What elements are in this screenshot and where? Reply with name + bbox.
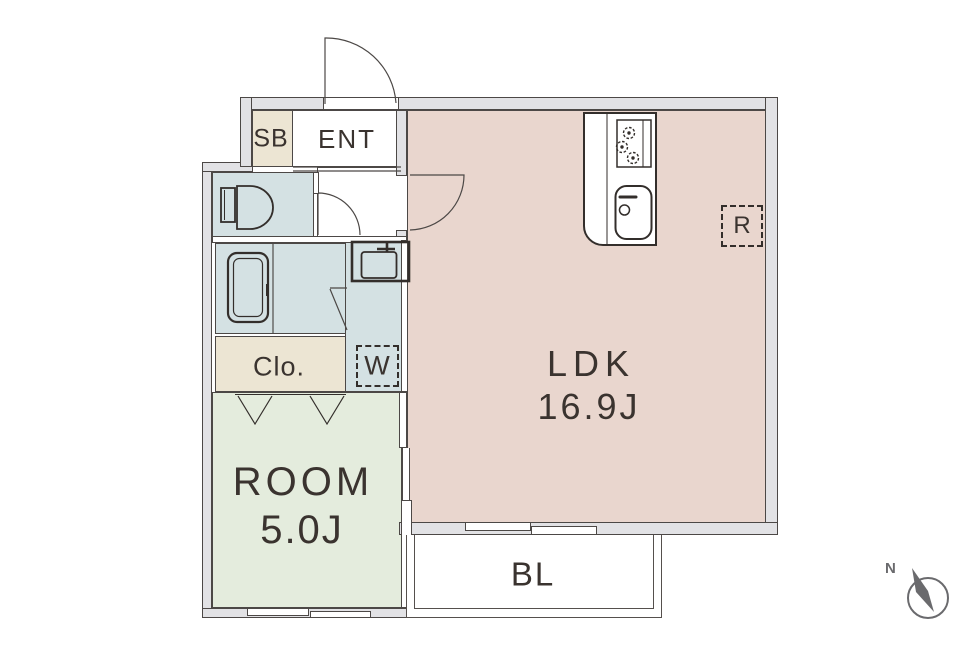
wall-right bbox=[765, 97, 778, 535]
bedroom-window-right-pane bbox=[310, 611, 371, 618]
compass-needle-icon bbox=[912, 568, 934, 612]
bathroom-room bbox=[215, 243, 346, 334]
bedroom-label: ROOM bbox=[233, 462, 373, 502]
floor-plan: N SB ENT LDK 16.9J ROOM 5.0J Clo. W R BL bbox=[0, 0, 980, 655]
wall-hallway-bottom bbox=[212, 236, 407, 243]
bedroom-area-label: 5.0J bbox=[260, 510, 344, 550]
sliding-door-bedroom bbox=[402, 448, 410, 500]
entrance-door-opening bbox=[323, 97, 399, 110]
wall-shoebox-left bbox=[240, 97, 252, 167]
bedroom-window-left-pane bbox=[247, 608, 309, 616]
compass: N bbox=[885, 560, 948, 618]
ldk-area-label: 16.9J bbox=[537, 389, 640, 425]
wall-entrance-ldk-upper bbox=[396, 110, 407, 176]
wall-left bbox=[202, 162, 212, 618]
shoe-box-label: SB bbox=[253, 127, 288, 152]
refrigerator-label: R bbox=[733, 214, 750, 238]
wall-toilet-hallway bbox=[313, 172, 319, 194]
wall-washroom-ldk bbox=[401, 240, 408, 392]
compass-north-label: N bbox=[885, 560, 896, 577]
hallway-area bbox=[317, 167, 402, 240]
entrance-door-arc bbox=[325, 38, 396, 104]
kitchen-counter bbox=[583, 112, 657, 246]
compass-circle bbox=[908, 578, 948, 618]
closet-label: Clo. bbox=[253, 354, 305, 381]
washing-machine-label: W bbox=[364, 353, 389, 380]
ldk-label: LDK bbox=[547, 346, 635, 382]
ldk-door-opening bbox=[397, 176, 406, 230]
ldk-window-left-pane bbox=[465, 522, 531, 531]
balcony-label: BL bbox=[511, 558, 555, 591]
wall-bedroom-ldk-upper bbox=[399, 392, 407, 448]
entrance-label: ENT bbox=[318, 126, 376, 152]
ldk-window-right-pane bbox=[531, 526, 597, 535]
toilet-room bbox=[212, 172, 314, 237]
